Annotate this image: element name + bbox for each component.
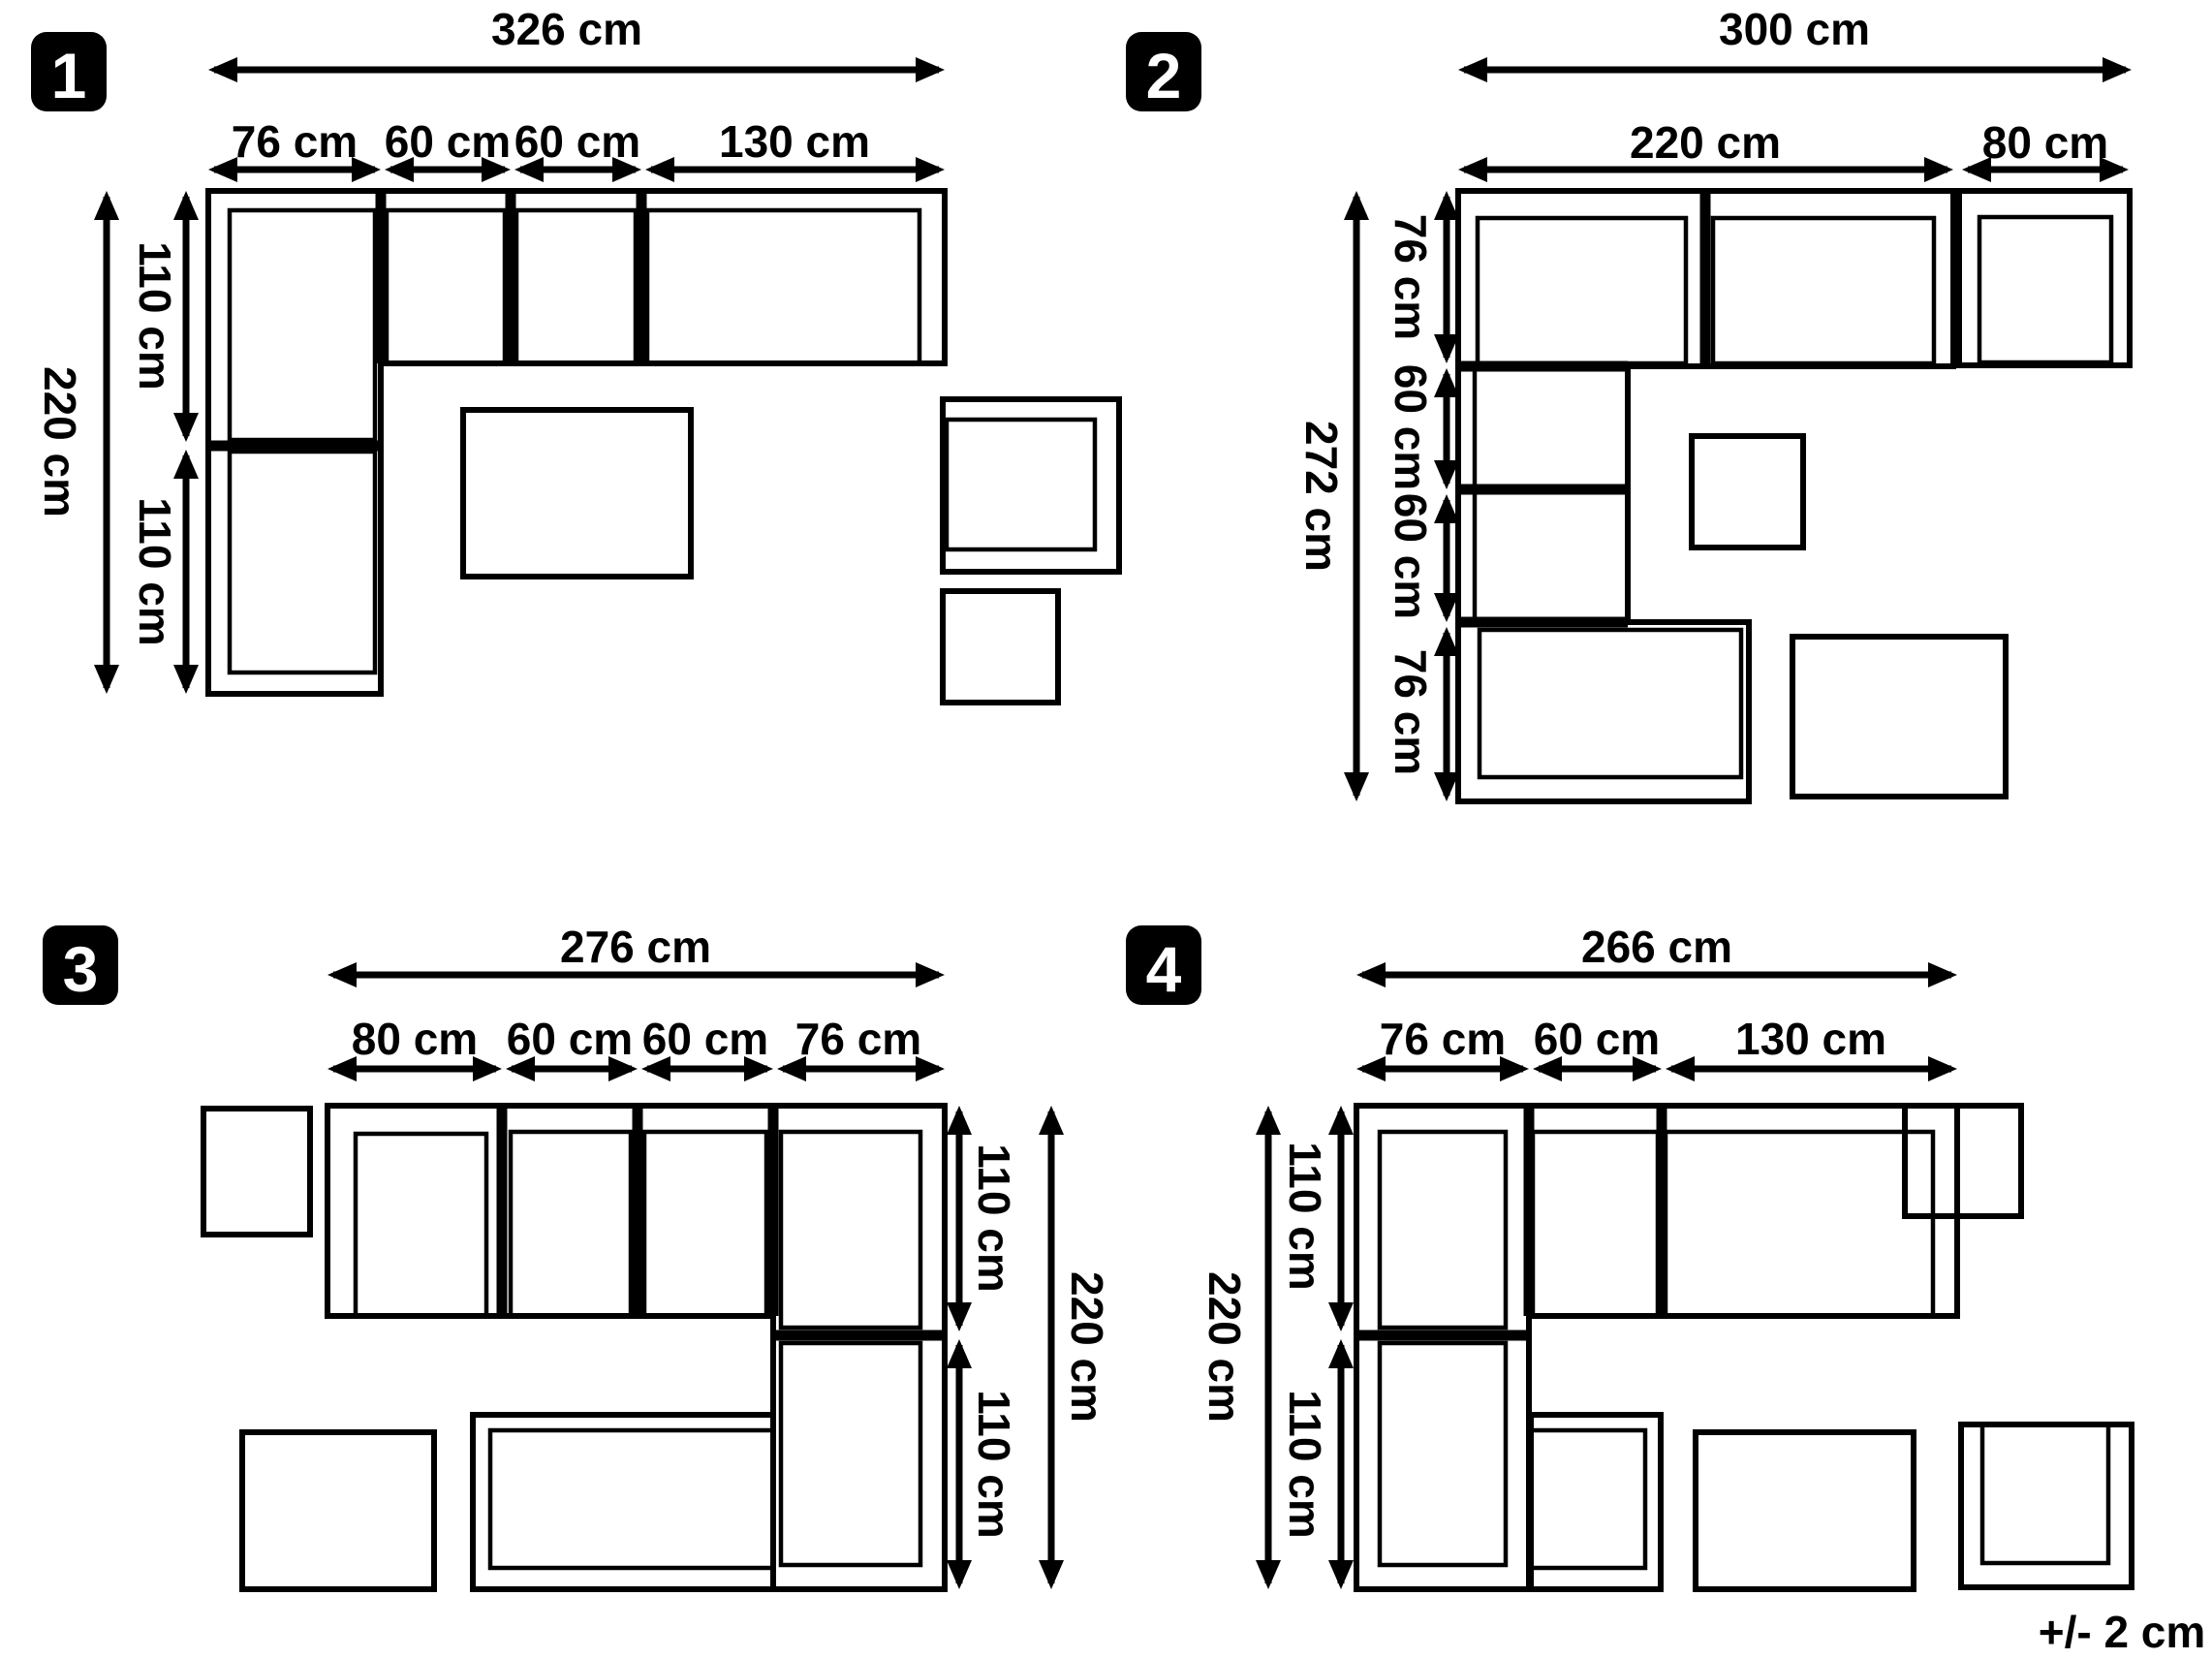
tolerance-note: +/- 2 cm	[2039, 1607, 2206, 1657]
armchair-cushion	[1982, 1424, 2108, 1563]
dimension-label: 60 cm	[1386, 493, 1436, 619]
armchair-cushion	[947, 420, 1095, 549]
seat-cushion	[781, 1132, 920, 1328]
bench	[473, 1415, 773, 1589]
side-table	[1692, 436, 1803, 548]
dimension-label: 76 cm	[232, 116, 358, 167]
segment-arrow-head	[1328, 1302, 1354, 1331]
total-depth-arrow-head	[94, 665, 119, 694]
total-depth-arrow	[1039, 1106, 1064, 1589]
segment-arrow	[947, 1339, 972, 1589]
seat-cushion	[511, 1132, 631, 1316]
total-width-arrow-head	[1928, 962, 1957, 987]
dimension-label: 220 cm	[1062, 1271, 1112, 1423]
total-depth-arrow-head	[1039, 1560, 1064, 1589]
armchair-cushion	[1979, 217, 2111, 362]
coffee-table	[242, 1432, 434, 1589]
coffee-table	[1696, 1432, 1914, 1589]
dimension-label: 276 cm	[560, 922, 711, 972]
segment-arrow	[1328, 1106, 1354, 1331]
panel-1: 1326 cm76 cm60 cm60 cm130 cm220 cm110 cm…	[31, 4, 1119, 703]
dimension-label: 110 cm	[969, 1390, 1019, 1538]
segment-arrow-head	[1328, 1106, 1354, 1135]
total-depth-arrow	[94, 191, 119, 694]
seat-cushion	[356, 1134, 486, 1316]
dimension-label: 60 cm	[514, 116, 640, 167]
segment-arrow-head	[645, 157, 674, 182]
ottoman	[203, 1109, 310, 1235]
dimension-label: 110 cm	[1280, 1390, 1330, 1538]
segment-arrow-head	[1924, 157, 1953, 182]
total-depth-arrow	[1256, 1106, 1281, 1589]
dimension-label: 326 cm	[491, 4, 642, 54]
panel-badge-number: 3	[63, 933, 99, 1005]
dimension-label: 272 cm	[1296, 421, 1347, 572]
panel-badge-number: 2	[1146, 40, 1182, 111]
furniture-dimension-sheet: 1326 cm76 cm60 cm60 cm130 cm220 cm110 cm…	[0, 0, 2212, 1659]
coffee-table	[463, 410, 691, 577]
bench-cushion	[490, 1430, 773, 1568]
segment-arrow	[1328, 1339, 1354, 1589]
total-width-arrow-head	[1458, 57, 1487, 82]
segment-arrow-head	[916, 157, 945, 182]
total-depth-arrow-head	[1256, 1560, 1281, 1589]
seat-cushion	[1666, 1132, 1933, 1316]
segment-arrow-head	[1328, 1339, 1354, 1368]
total-depth-arrow-head	[1039, 1106, 1064, 1135]
segment-arrow-head	[173, 191, 199, 220]
segment-arrow-head	[1328, 1560, 1354, 1589]
total-width-arrow-head	[2103, 57, 2132, 82]
dimension-label: 76 cm	[795, 1014, 921, 1064]
dimension-label: 80 cm	[352, 1014, 478, 1064]
dimension-label: 60 cm	[1534, 1014, 1660, 1064]
dimension-label: 300 cm	[1719, 4, 1870, 54]
total-depth-arrow-head	[1344, 772, 1369, 801]
total-width-arrow	[208, 57, 945, 82]
diagram-canvas: 1326 cm76 cm60 cm60 cm130 cm220 cm110 cm…	[0, 0, 2212, 1659]
panel-3: 3276 cm80 cm60 cm60 cm76 cm110 cm110 cm2…	[43, 922, 1112, 1589]
dimension-label: 60 cm	[1386, 364, 1436, 490]
bench	[1531, 1415, 1661, 1589]
total-depth-arrow-head	[94, 191, 119, 220]
seat-cushion	[1480, 630, 1741, 777]
total-width-arrow-head	[208, 57, 237, 82]
seat-cushion	[387, 210, 505, 363]
dimension-label: 130 cm	[719, 116, 870, 167]
bench-cushion	[1531, 1430, 1645, 1568]
seat-cushion	[230, 452, 375, 673]
total-depth-arrow-head	[1344, 191, 1369, 220]
dimension-label: 60 cm	[642, 1014, 768, 1064]
seat-cushion	[781, 1343, 920, 1565]
segment-arrow-head	[947, 1560, 972, 1589]
seat-cushion	[516, 210, 636, 363]
dimension-label: 220 cm	[1630, 117, 1781, 168]
total-width-arrow-head	[916, 962, 945, 987]
segment-arrow-head	[1928, 1056, 1957, 1081]
dimension-label: 110 cm	[1280, 1142, 1330, 1290]
dimension-label: 110 cm	[130, 497, 180, 645]
total-width-arrow	[1458, 57, 2132, 82]
segment-arrow-head	[1666, 1056, 1695, 1081]
dimension-label: 60 cm	[507, 1014, 633, 1064]
dimension-label: 60 cm	[385, 116, 511, 167]
seat-cushion	[1533, 1132, 1658, 1316]
segment-arrow-head	[947, 1106, 972, 1135]
segment-arrow-head	[947, 1339, 972, 1368]
armchair	[943, 399, 1119, 572]
segment-arrow	[947, 1106, 972, 1331]
segment-arrow-head	[1458, 157, 1487, 182]
dimension-label: 266 cm	[1581, 922, 1732, 972]
total-depth-arrow-head	[1256, 1106, 1281, 1135]
seat-cushion	[1478, 218, 1686, 363]
dimension-label: 76 cm	[1386, 649, 1436, 775]
seat-cushion	[1380, 1132, 1506, 1328]
panel-badge-number: 1	[51, 40, 87, 111]
panel-badge-number: 4	[1146, 933, 1182, 1005]
dimension-label: 110 cm	[969, 1143, 1019, 1292]
total-width-arrow-head	[1356, 962, 1386, 987]
dimension-label: 76 cm	[1380, 1014, 1506, 1064]
dimension-label: 76 cm	[1386, 214, 1436, 340]
segment-arrow-head	[947, 1302, 972, 1331]
seat-cushion	[1380, 1343, 1506, 1565]
coffee-table	[1792, 637, 2006, 797]
dimension-label: 110 cm	[130, 241, 180, 390]
seat-cushion	[1713, 218, 1934, 363]
dimension-label: 220 cm	[1199, 1271, 1250, 1423]
seat-cushion	[644, 1132, 766, 1316]
segment-arrow-head	[173, 665, 199, 694]
segment-arrow-head	[173, 413, 199, 442]
panel-2: 2300 cm220 cm80 cm272 cm76 cm60 cm60 cm7…	[1126, 4, 2132, 801]
side-table	[1905, 1106, 2021, 1216]
panel-4: 4266 cm76 cm60 cm130 cm220 cm110 cm110 c…	[1126, 922, 2132, 1589]
seat-cushion	[647, 210, 919, 363]
seat-cushion	[230, 210, 375, 440]
segment-arrow-head	[173, 450, 199, 479]
dimension-label: 80 cm	[1982, 117, 2108, 168]
dimension-label: 130 cm	[1735, 1014, 1886, 1064]
ottoman	[943, 591, 1058, 703]
total-width-arrow-head	[916, 57, 945, 82]
dimension-label: 220 cm	[35, 366, 85, 517]
total-width-arrow-head	[327, 962, 357, 987]
